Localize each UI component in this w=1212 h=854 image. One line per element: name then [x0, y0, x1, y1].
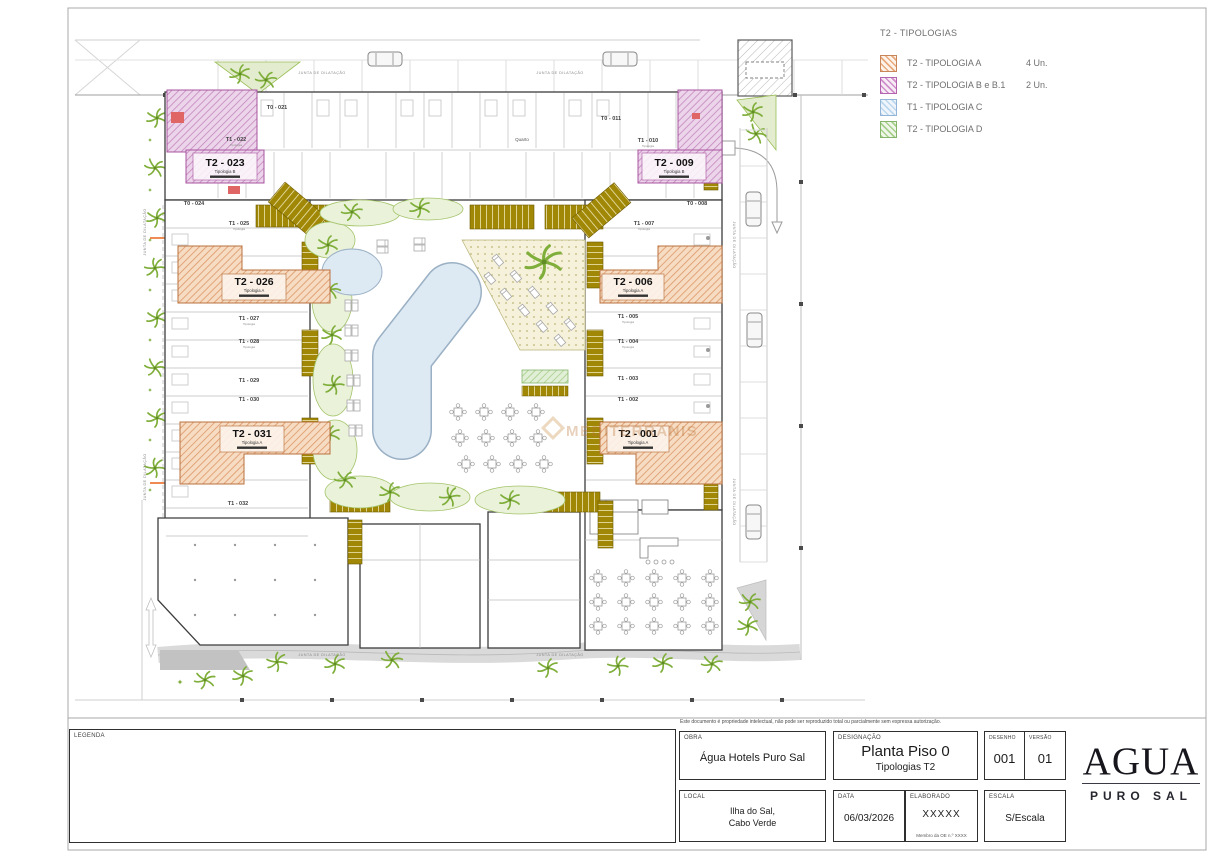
courtyard-restaurant [450, 404, 553, 473]
svg-text:Tipologia A: Tipologia A [628, 440, 649, 445]
elaborado-box: ELABORADO XXXXX Membro da OE n.º XXXX [905, 790, 978, 842]
local-line1: Ilha do Sal, [680, 806, 825, 816]
top-planter [215, 62, 300, 94]
svg-text:Tipologia A: Tipologia A [242, 440, 263, 445]
building-hall-west [158, 518, 348, 645]
designacao-sub: Tipologias T2 [834, 762, 977, 773]
svg-text:JUNTA DE DILATAÇÃO: JUNTA DE DILATAÇÃO [536, 70, 583, 75]
svg-text:JUNTA DE DILATAÇÃO: JUNTA DE DILATAÇÃO [732, 478, 737, 525]
local-line2: Cabo Verde [680, 818, 825, 828]
gray-ramp [160, 650, 250, 670]
legend-item-tipologia-d: T2 - TIPOLOGIA D [880, 118, 1180, 140]
unit-label: T2 - 023 [205, 157, 244, 169]
svg-text:Tipologia: Tipologia [638, 227, 650, 231]
unit-label: T2 - 026 [234, 276, 273, 288]
svg-text:Tipologia: Tipologia [230, 143, 242, 147]
escala-value: S/Escala [985, 813, 1065, 824]
svg-text:JUNTA DE DILATAÇÃO: JUNTA DE DILATAÇÃO [536, 652, 583, 657]
pergola [522, 370, 568, 396]
courtyard [305, 198, 585, 514]
unit-label: T1 - 032 [228, 501, 248, 507]
car-icon [368, 52, 402, 66]
svg-text:Tipologia: Tipologia [642, 144, 654, 148]
legend-title: T2 - TIPOLOGIAS [880, 28, 1180, 38]
svg-text:JUNTA DE DILATAÇÃO: JUNTA DE DILATAÇÃO [732, 221, 737, 268]
unit-label: T1 - 030 [239, 397, 259, 403]
escala-box: ESCALA S/Escala [984, 790, 1066, 842]
unit-label: T0 - 011 [601, 116, 621, 122]
data-box: DATA 06/03/2026 [833, 790, 905, 842]
svg-text:Tipologia: Tipologia [622, 345, 634, 349]
agua-puro-sal-logo: AGUA PURO SAL [1078, 742, 1204, 803]
designacao-box: DESIGNAÇÃO Planta Piso 0 Tipologias T2 [833, 731, 978, 780]
desenho-value: 001 [985, 751, 1024, 766]
unit-label: T1 - 003 [618, 376, 638, 382]
svg-text:JUNTA DE DILATAÇÃO: JUNTA DE DILATAÇÃO [142, 453, 147, 500]
obra-box: OBRA Água Hotels Puro Sal [679, 731, 826, 780]
svg-text:Tipologia B: Tipologia B [664, 169, 685, 174]
bottom-road [75, 648, 865, 702]
desenho-box: DESENHO 001 [984, 731, 1025, 780]
svg-text:Tipologia: Tipologia [243, 345, 255, 349]
unit-label: T0 - 021 [267, 105, 287, 111]
unit-label: T2 - 009 [654, 157, 693, 169]
versao-box: VERSÃO 01 [1024, 731, 1066, 780]
car-icon [603, 52, 637, 66]
car-icon [747, 313, 762, 347]
legend-item-tipologia-c: T1 - TIPOLOGIA C [880, 96, 1180, 118]
typology-legend: T2 - TIPOLOGIAS T2 - TIPOLOGIA A 4 Un. T… [880, 28, 1180, 140]
svg-text:Tipologia B: Tipologia B [215, 169, 236, 174]
svg-text:JUNTA DE DILATAÇÃO: JUNTA DE DILATAÇÃO [142, 208, 147, 255]
elaborado-value: XXXXX [906, 809, 977, 820]
entrance-gate [738, 40, 792, 96]
road-arrow-icon [146, 598, 156, 657]
room-label: Quarto [515, 137, 529, 142]
logo-divider [1082, 783, 1200, 784]
drawing-sheet: { "colors": { "tipologia_a": "#e8a06a", … [0, 0, 1212, 854]
unit-label: T0 - 024 [184, 201, 205, 207]
car-icon [746, 192, 761, 226]
local-box: LOCAL Ilha do Sal, Cabo Verde [679, 790, 826, 842]
versao-value: 01 [1025, 751, 1065, 766]
svg-text:Tipologia: Tipologia [243, 322, 255, 326]
car-icon [746, 505, 761, 539]
svg-text:JUNTA DE DILATAÇÃO: JUNTA DE DILATAÇÃO [298, 652, 345, 657]
right-gray-planter [737, 580, 766, 640]
svg-text:MEDITERRANIS: MEDITERRANIS [566, 423, 698, 440]
obra-value: Água Hotels Puro Sal [680, 752, 825, 764]
svg-text:Tipologia A: Tipologia A [623, 288, 644, 293]
svg-text:Tipologia: Tipologia [622, 320, 634, 324]
main-pool [402, 292, 452, 430]
svg-text:Tipologia A: Tipologia A [244, 288, 265, 293]
elaborado-sub: Membro da OE n.º XXXX [906, 833, 977, 838]
tipologia-d-swatch [880, 121, 897, 138]
logo-name: AGUA [1078, 742, 1204, 782]
copyright-disclaimer: Este documento é propriedade intelectual… [680, 719, 941, 725]
tipologia-a-swatch [880, 55, 897, 72]
designacao-value: Planta Piso 0 [834, 743, 977, 760]
unit-label: T0 - 008 [687, 201, 707, 207]
tipologia-c-swatch [880, 99, 897, 116]
left-garden [142, 109, 167, 700]
unit-label: T2 - 006 [613, 276, 652, 288]
tipologia-b-swatch [880, 77, 897, 94]
legenda-label: LEGENDA [74, 733, 105, 739]
legenda-box: LEGENDA [69, 729, 676, 843]
svg-text:JUNTA DE DILATAÇÃO: JUNTA DE DILATAÇÃO [298, 70, 345, 75]
logo-subtitle: PURO SAL [1078, 789, 1204, 803]
unit-label: T2 - 031 [232, 428, 271, 440]
unit-label: T1 - 002 [618, 397, 638, 403]
building-hall-east [488, 512, 580, 648]
legend-item-tipologia-a: T2 - TIPOLOGIA A 4 Un. [880, 52, 1180, 74]
svg-text:Tipologia: Tipologia [233, 227, 245, 231]
unit-label: T1 - 029 [239, 378, 259, 384]
data-value: 06/03/2026 [834, 813, 904, 824]
legend-item-tipologia-b: T2 - TIPOLOGIA B e B.1 2 Un. [880, 74, 1180, 96]
